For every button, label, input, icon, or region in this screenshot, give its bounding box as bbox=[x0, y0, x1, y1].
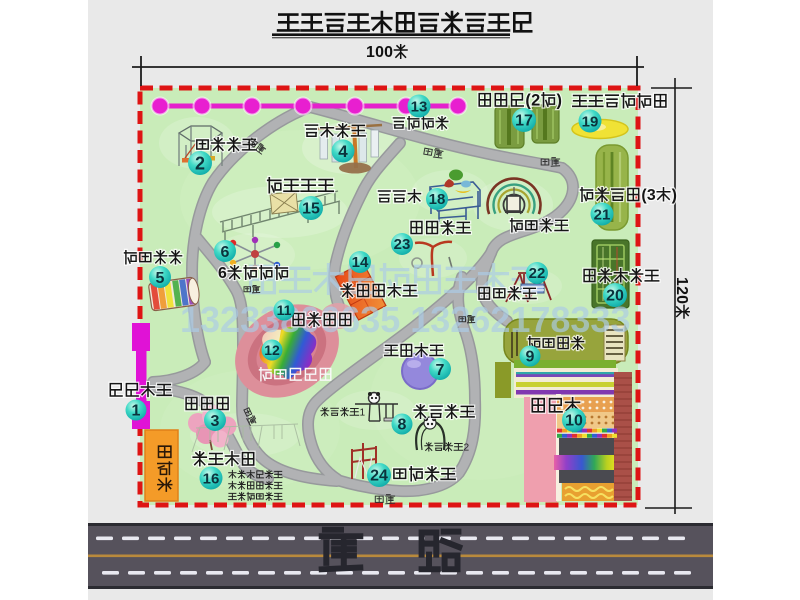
svg-text:3: 3 bbox=[647, 187, 656, 204]
svg-text:21: 21 bbox=[594, 206, 611, 223]
svg-text:11: 11 bbox=[277, 302, 292, 318]
svg-text:): ) bbox=[672, 187, 677, 204]
svg-text:6: 6 bbox=[221, 244, 230, 261]
svg-text:1: 1 bbox=[673, 277, 690, 286]
svg-text:16: 16 bbox=[203, 470, 220, 487]
svg-text:2: 2 bbox=[464, 442, 470, 453]
svg-text:3: 3 bbox=[211, 413, 220, 430]
svg-text:6: 6 bbox=[218, 265, 227, 282]
svg-text:0: 0 bbox=[375, 44, 384, 61]
svg-text:14: 14 bbox=[352, 254, 369, 271]
svg-text:7: 7 bbox=[436, 362, 445, 379]
svg-text:8: 8 bbox=[398, 417, 407, 434]
svg-text:19: 19 bbox=[582, 113, 599, 130]
svg-text:1: 1 bbox=[360, 407, 366, 418]
svg-text:18: 18 bbox=[429, 191, 446, 208]
svg-text:2: 2 bbox=[531, 92, 540, 110]
svg-text:9: 9 bbox=[526, 349, 535, 366]
svg-text:13: 13 bbox=[411, 98, 428, 115]
svg-text:5: 5 bbox=[156, 270, 165, 287]
svg-text:23: 23 bbox=[394, 236, 411, 253]
svg-text:20: 20 bbox=[606, 288, 624, 305]
svg-text:22: 22 bbox=[529, 265, 546, 282]
svg-text:): ) bbox=[557, 92, 562, 110]
svg-text:24: 24 bbox=[370, 468, 388, 485]
svg-text:12: 12 bbox=[264, 342, 280, 358]
svg-text:17: 17 bbox=[515, 113, 533, 130]
svg-text:0: 0 bbox=[673, 295, 690, 304]
svg-text:1: 1 bbox=[132, 403, 141, 420]
svg-text:4: 4 bbox=[338, 142, 348, 161]
svg-text:1: 1 bbox=[366, 44, 375, 61]
svg-text:15: 15 bbox=[302, 201, 320, 218]
svg-text:2: 2 bbox=[673, 286, 690, 295]
svg-text:13233806635 13262178333: 13233806635 13262178333 bbox=[180, 299, 630, 340]
svg-text:0: 0 bbox=[384, 44, 393, 61]
svg-text:2: 2 bbox=[195, 153, 205, 173]
svg-text:10: 10 bbox=[565, 413, 583, 430]
